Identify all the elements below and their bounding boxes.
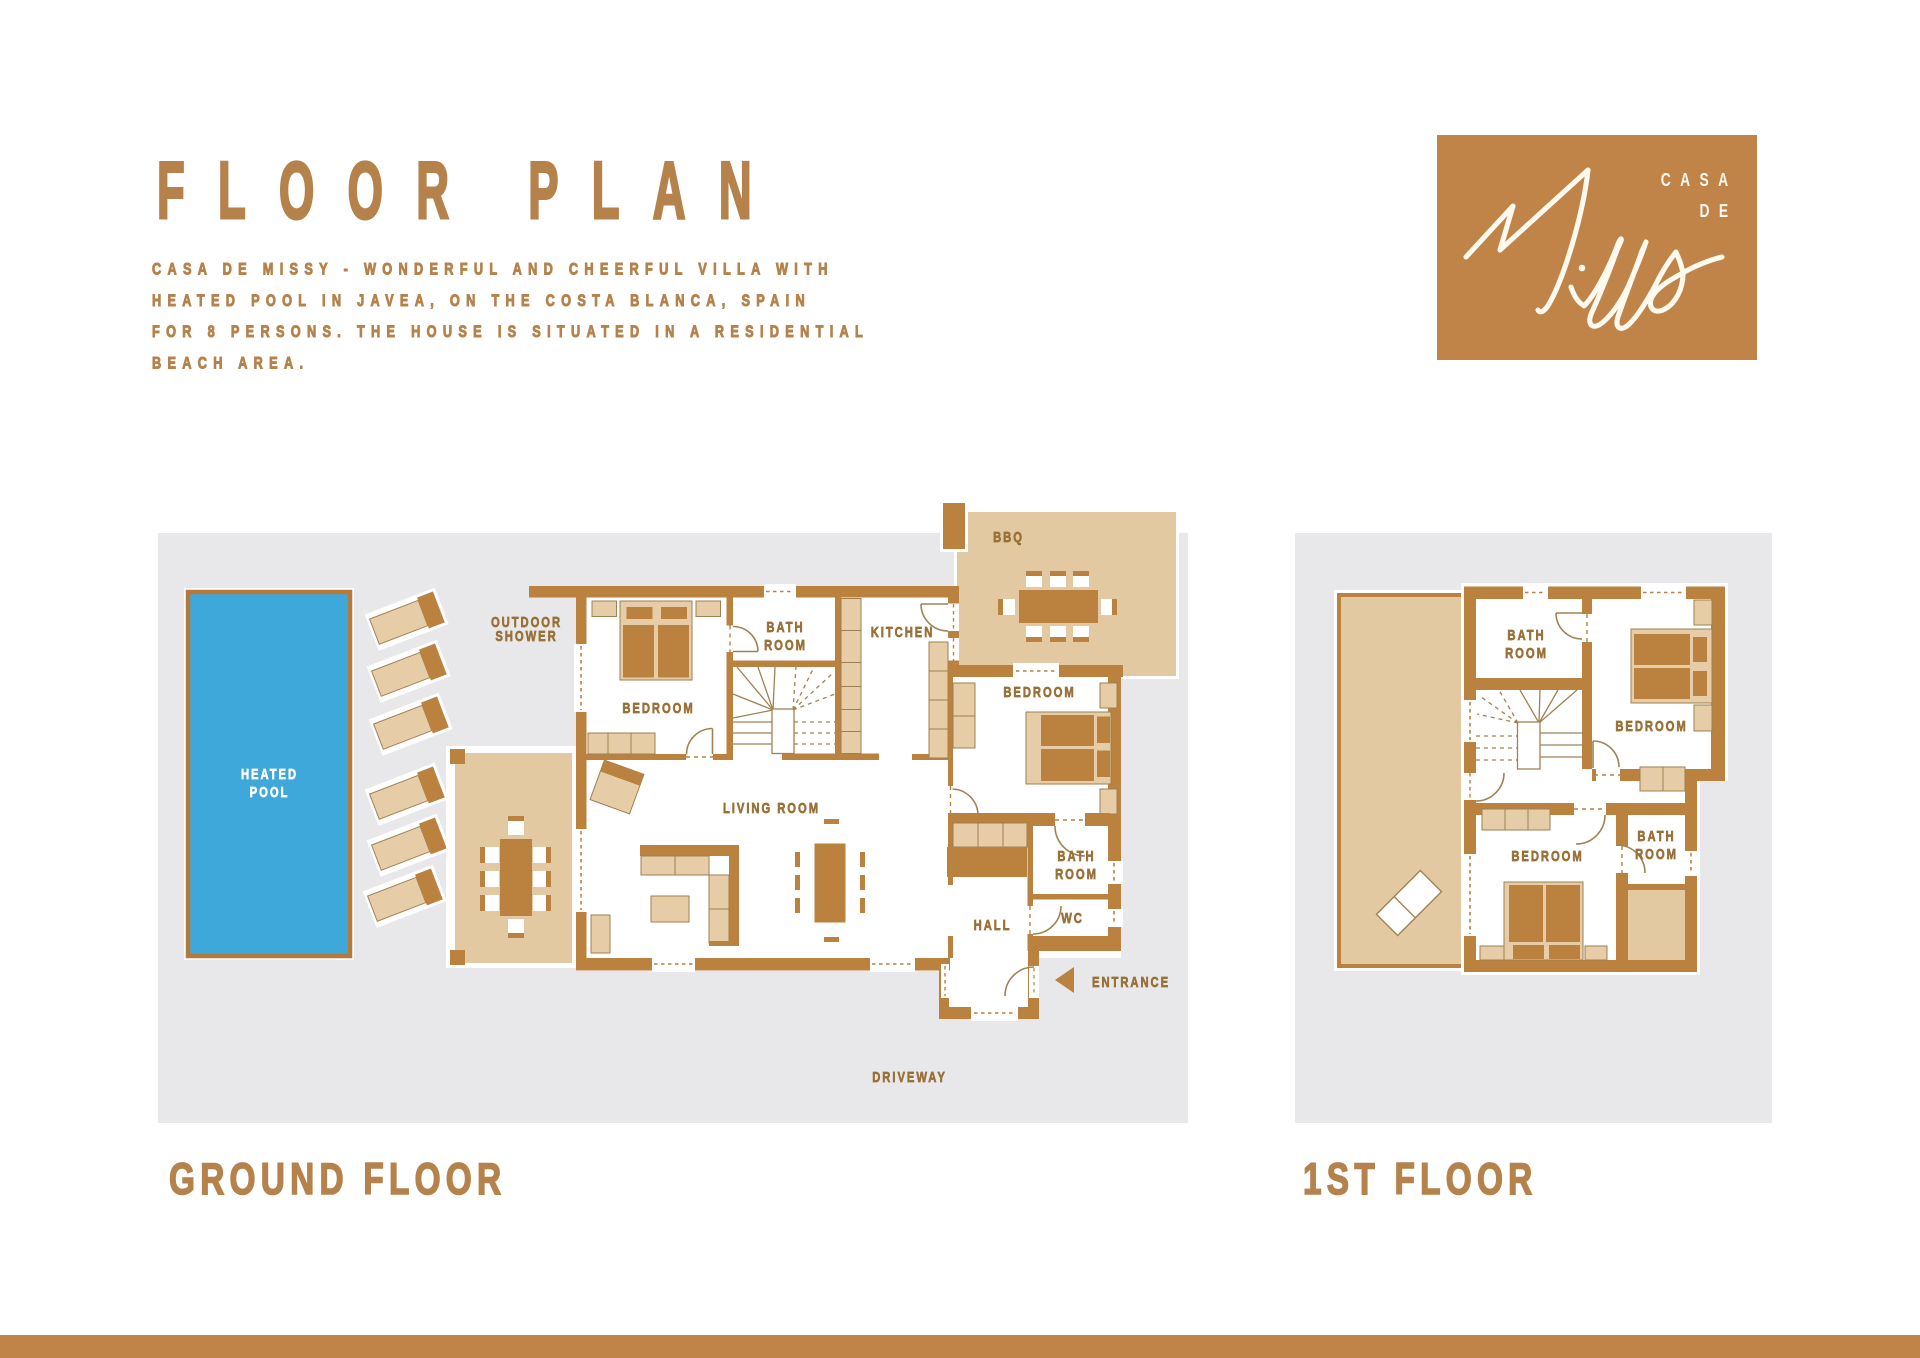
svg-text:ENTRANCE: ENTRANCE: [1092, 973, 1170, 990]
svg-text:CASA DE MISSY - WONDERFUL AND: CASA DE MISSY - WONDERFUL AND CHEERFUL V…: [152, 260, 834, 279]
svg-text:GROUND FLOOR: GROUND FLOOR: [169, 1154, 506, 1204]
svg-text:ROOM: ROOM: [1055, 865, 1098, 882]
svg-text:HALL: HALL: [974, 916, 1012, 933]
svg-text:ROOM: ROOM: [764, 636, 807, 653]
svg-text:BEDROOM: BEDROOM: [1511, 847, 1583, 864]
svg-text:BEDROOM: BEDROOM: [1003, 683, 1075, 700]
svg-text:ROOM: ROOM: [1635, 845, 1678, 862]
svg-text:BBQ: BBQ: [993, 528, 1024, 545]
svg-text:POOL: POOL: [250, 783, 290, 800]
svg-text:BATH: BATH: [1637, 827, 1675, 844]
svg-text:BEDROOM: BEDROOM: [1615, 717, 1687, 734]
svg-text:FOR 8 PERSONS. THE HOUSE IS SI: FOR 8 PERSONS. THE HOUSE IS SITUATED IN …: [152, 322, 869, 341]
svg-text:BATH: BATH: [766, 618, 804, 635]
svg-text:BEDROOM: BEDROOM: [622, 699, 694, 716]
svg-text:FLOOR PLAN: FLOOR PLAN: [157, 145, 785, 235]
svg-text:DRIVEWAY: DRIVEWAY: [872, 1068, 947, 1085]
svg-text:SHOWER: SHOWER: [495, 627, 557, 644]
svg-text:HEATED POOL IN JAVEA, ON THE C: HEATED POOL IN JAVEA, ON THE COSTA BLANC…: [152, 291, 811, 310]
svg-text:WC: WC: [1061, 909, 1084, 926]
svg-text:DE: DE: [1699, 201, 1737, 221]
svg-text:BATH: BATH: [1507, 626, 1545, 643]
svg-text:BEACH AREA.: BEACH AREA.: [152, 354, 309, 373]
svg-text:KITCHEN: KITCHEN: [871, 623, 935, 640]
svg-text:ROOM: ROOM: [1505, 644, 1548, 661]
svg-text:BATH: BATH: [1057, 847, 1095, 864]
svg-text:CASA: CASA: [1661, 170, 1738, 190]
svg-text:LIVING ROOM: LIVING ROOM: [723, 799, 820, 816]
svg-text:1ST FLOOR: 1ST FLOOR: [1303, 1154, 1538, 1204]
svg-text:HEATED: HEATED: [241, 765, 298, 782]
